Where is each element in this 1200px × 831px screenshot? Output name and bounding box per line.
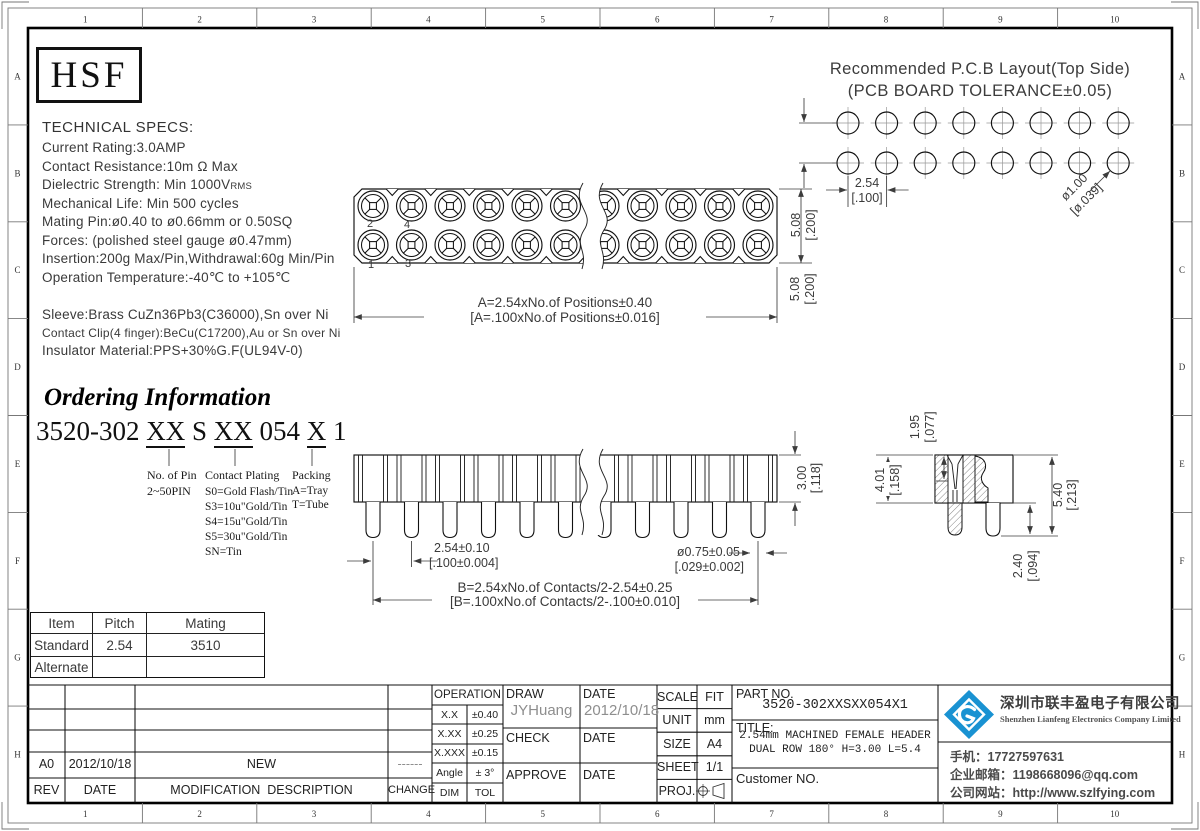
svg-text:2: 2: [197, 809, 202, 819]
spec-sleeve: Sleeve:Brass CuZn36Pb3(C36000),Sn over N…: [42, 307, 329, 322]
company-logo: [944, 690, 994, 739]
svg-text:1: 1: [83, 809, 88, 819]
spec-contact-resistance: Contact Resistance:10m Ω Max: [42, 159, 238, 174]
pin-number: 4: [404, 219, 410, 231]
pin-number: 1: [368, 259, 374, 271]
customer-no-label: Customer NO.: [736, 771, 819, 786]
spec-temperature: Operation Temperature:-40℃ to +105℃: [42, 270, 290, 286]
tolerance-row-value: ±0.25: [467, 728, 503, 740]
pin-number: 2: [367, 218, 373, 230]
tolerance-row-label: DIM: [432, 787, 467, 799]
ordering-pin-range: 2~50PIN: [147, 484, 191, 499]
svg-text:C: C: [1179, 265, 1185, 275]
packing-option: T=Tube: [292, 499, 329, 511]
svg-text:2: 2: [197, 15, 202, 25]
svg-text:G: G: [14, 653, 21, 663]
approve-label: APPROVE: [506, 768, 566, 782]
svg-text:C: C: [14, 265, 20, 275]
dim-pin-pitch: 2.54±0.10: [434, 541, 490, 555]
dim-a: A=2.54xNo.of Positions±0.40: [478, 295, 652, 310]
date-column-label: DATE: [65, 783, 135, 797]
unit-value: mm: [697, 713, 732, 727]
dim-row-height-in: [.200]: [803, 273, 817, 304]
company-phone: 手机：17727597631: [950, 746, 1064, 765]
dim-total-height-in: [.213]: [1065, 479, 1079, 510]
specs-title: TECHNICAL SPECS:: [42, 119, 194, 136]
revision-code: A0: [28, 757, 65, 771]
dim-body-height: 3.00: [795, 466, 809, 490]
plating-option: S5=30u"Gold/Tin: [205, 531, 287, 543]
scale-label: SCALE: [657, 690, 697, 704]
revision-description: NEW: [135, 757, 388, 771]
unit-label: UNIT: [657, 713, 697, 727]
connector-side-view: 3.00 [.118] 2.54±0.10 [.100±0.004] ø0.75…: [347, 431, 823, 609]
ordering-pin-label: No. of Pin: [147, 468, 197, 483]
plating-option: S3=10u"Gold/Tin: [205, 501, 287, 513]
svg-text:1: 1: [83, 15, 88, 25]
spec-forces: Forces: (polished steel gauge ø0.47mm): [42, 233, 292, 248]
tolerance-row-value: ± 3°: [467, 767, 503, 779]
pin-number: 3: [405, 258, 411, 270]
svg-text:6: 6: [655, 809, 660, 819]
description-column-label: MODIFICATION DESCRIPTION: [135, 783, 388, 797]
rev-column-label: REV: [28, 783, 65, 797]
date-label: DATE: [583, 731, 615, 745]
dim-pcb-pitch: 2.54: [855, 176, 879, 190]
svg-text:10: 10: [1110, 809, 1120, 819]
drawing-title-line1: 2.54mm MACHINED FEMALE HEADER: [732, 730, 938, 742]
plating-option: S4=15u"Gold/Tin: [205, 516, 287, 528]
svg-text:6: 6: [655, 15, 660, 25]
svg-text:8: 8: [884, 15, 889, 25]
company-website: 公司网站：http://www.szlfying.com: [950, 782, 1155, 801]
tolerance-row-value: ±0.15: [467, 747, 503, 759]
projection-symbol: [696, 784, 724, 799]
mating-table-header: Mating: [147, 613, 264, 634]
date-label: DATE: [583, 687, 615, 701]
svg-text:E: E: [1179, 459, 1185, 469]
svg-text:5: 5: [541, 809, 546, 819]
engineering-drawing-page: 1 2 3 4 5 6 7 8 9 10 1 2 3 4 5 6 7 8 9 1…: [0, 0, 1200, 831]
svg-text:5: 5: [541, 15, 546, 25]
check-label: CHECK: [506, 731, 550, 745]
svg-text:9: 9: [998, 809, 1003, 819]
plating-option: SN=Tin: [205, 546, 242, 558]
spec-dielectric: Dielectric Strength: Min 1000VRMS: [42, 177, 252, 192]
pcb-layout-title: Recommended P.C.B Layout(Top Side): [780, 60, 1180, 79]
svg-text:B: B: [1179, 168, 1185, 178]
spec-insertion: Insertion:200g Max/Pin,Withdrawal:60g Mi…: [42, 251, 335, 266]
svg-text:10: 10: [1110, 15, 1120, 25]
part-no-value: 3520-302XXSXX054X1: [732, 698, 938, 713]
svg-text:H: H: [1179, 750, 1186, 760]
svg-text:F: F: [15, 556, 20, 566]
tolerance-row-value: TOL: [467, 787, 503, 799]
contact-detail-view: 1.95 [.077] 4.01 [.158] 5.40 [.213] 2.40…: [873, 411, 1079, 581]
revision-date: 2012/10/18: [65, 757, 135, 771]
svg-text:F: F: [1179, 556, 1184, 566]
sheet-label: SHEET: [657, 760, 697, 774]
revision-change: ------: [388, 757, 432, 771]
company-name-en: Shenzhen Lianfeng Electronics Company Li…: [1000, 714, 1170, 724]
svg-text:A: A: [14, 71, 21, 81]
tolerance-row-label: Angle: [432, 767, 467, 779]
mating-table-cell: [93, 657, 147, 677]
mating-table-header: Item: [31, 613, 93, 634]
dim-row-height: 5.08: [788, 277, 802, 301]
svg-text:8: 8: [884, 809, 889, 819]
size-value: A4: [697, 737, 732, 751]
dim-body-height-in: [.118]: [809, 463, 823, 493]
svg-text:7: 7: [769, 809, 774, 819]
svg-text:D: D: [1179, 362, 1186, 372]
svg-text:3: 3: [312, 15, 317, 25]
dim-tail-length-in: [.094]: [1026, 550, 1040, 581]
ordering-plating-label: Contact Plating: [205, 468, 279, 483]
tolerance-row-label: X.XXX: [432, 747, 467, 759]
spec-insulator: Insulator Material:PPS+30%G.F(UL94V-0): [42, 343, 303, 358]
mating-table-cell: [147, 657, 264, 677]
tolerance-row-label: X.X: [432, 709, 467, 721]
connector-top-view: 2 4 1 3 A=2.54xNo.of Positions±0.40 [A=.…: [354, 183, 817, 325]
drawer-name: JYHuang: [505, 702, 578, 719]
svg-text:E: E: [15, 459, 21, 469]
tolerance-row-label: X.XX: [432, 728, 467, 740]
size-label: SIZE: [657, 737, 697, 751]
draw-label: DRAW: [506, 687, 544, 701]
dim-entry-depth-in: [.077]: [923, 411, 937, 442]
mating-table-cell: 3510: [147, 634, 264, 657]
dim-sleeve-height: 4.01: [873, 468, 887, 492]
hsf-logo-text: HSF: [51, 54, 128, 97]
date-label: DATE: [583, 768, 615, 782]
dim-pcb-pitch-in: [.100]: [851, 191, 882, 205]
spec-contact-clip: Contact Clip(4 finger):BeCu(C17200),Au o…: [42, 326, 341, 340]
ordering-leader-lines: [169, 449, 312, 466]
svg-text:9: 9: [998, 15, 1003, 25]
company-name-cn: 深圳市联丰盈电子有限公司: [1000, 692, 1170, 713]
mating-table-header: Pitch: [93, 613, 147, 634]
dim-sleeve-height-in: [.158]: [888, 464, 902, 495]
drawing-title-line2: DUAL ROW 180° H=3.00 L=5.4: [732, 744, 938, 756]
pcb-layout-subtitle: (PCB BOARD TOLERANCE±0.05): [780, 82, 1180, 101]
svg-text:3: 3: [312, 809, 317, 819]
svg-text:7: 7: [769, 15, 774, 25]
svg-text:H: H: [14, 750, 21, 760]
svg-text:B: B: [14, 168, 20, 178]
part-number-code: 3520-302 XX S XX 054 X 1: [36, 416, 347, 447]
svg-text:G: G: [1179, 653, 1186, 663]
packing-option: A=Tray: [292, 485, 328, 497]
spec-current-rating: Current Rating:3.0AMP: [42, 140, 186, 155]
projection-label: PROJ.: [657, 784, 697, 798]
pcb-layout-drawing: 2.54 [.100] 5.08 [.200] ø1.00 [ø.039]: [789, 98, 1134, 241]
mating-table-cell: 2.54: [93, 634, 147, 657]
plating-option: S0=Gold Flash/Tin: [205, 486, 293, 498]
tolerance-table-header: OPERATION: [432, 689, 503, 701]
change-column-label: CHANGE: [388, 784, 432, 796]
company-email: 企业邮箱：1198668096@qq.com: [950, 764, 1138, 783]
tolerance-row-value: ±0.40: [467, 709, 503, 721]
dim-b: B=2.54xNo.of Contacts/2-2.54±0.25: [458, 580, 673, 595]
dim-pin-pitch-in: [.100±0.004]: [429, 556, 498, 570]
dim-a-inch: [A=.100xNo.of Positions±0.016]: [470, 310, 659, 325]
spec-mating-pin: Mating Pin:ø0.40 to ø0.66mm or 0.50SQ: [42, 214, 293, 229]
dim-entry-depth: 1.95: [908, 415, 922, 439]
dim-total-height: 5.40: [1051, 483, 1065, 507]
mating-table: Item Pitch Mating Standard 2.54 3510 Alt…: [30, 612, 265, 678]
dim-tail-length: 2.40: [1011, 554, 1025, 578]
svg-text:4: 4: [426, 809, 431, 819]
hsf-logo: HSF: [36, 47, 142, 103]
spec-mechanical-life: Mechanical Life: Min 500 cycles: [42, 196, 239, 211]
scale-value: FIT: [697, 690, 732, 704]
sheet-value: 1/1: [697, 760, 732, 774]
svg-text:D: D: [14, 362, 21, 372]
dim-pin-dia-in: [.029±0.002]: [675, 560, 744, 574]
dim-pin-dia: ø0.75±0.05: [677, 545, 740, 559]
ordering-packing-label: Packing: [292, 468, 331, 483]
dim-pcb-row-in: [.200]: [804, 209, 818, 240]
draw-date: 2012/10/18: [584, 702, 659, 719]
dim-b-inch: [B=.100xNo.of Contacts/2-.100±0.010]: [450, 594, 680, 609]
ordering-heading: Ordering Information: [44, 384, 271, 412]
svg-text:4: 4: [426, 15, 431, 25]
mating-table-cell: Standard: [31, 634, 93, 657]
mating-table-cell: Alternate: [31, 657, 93, 677]
